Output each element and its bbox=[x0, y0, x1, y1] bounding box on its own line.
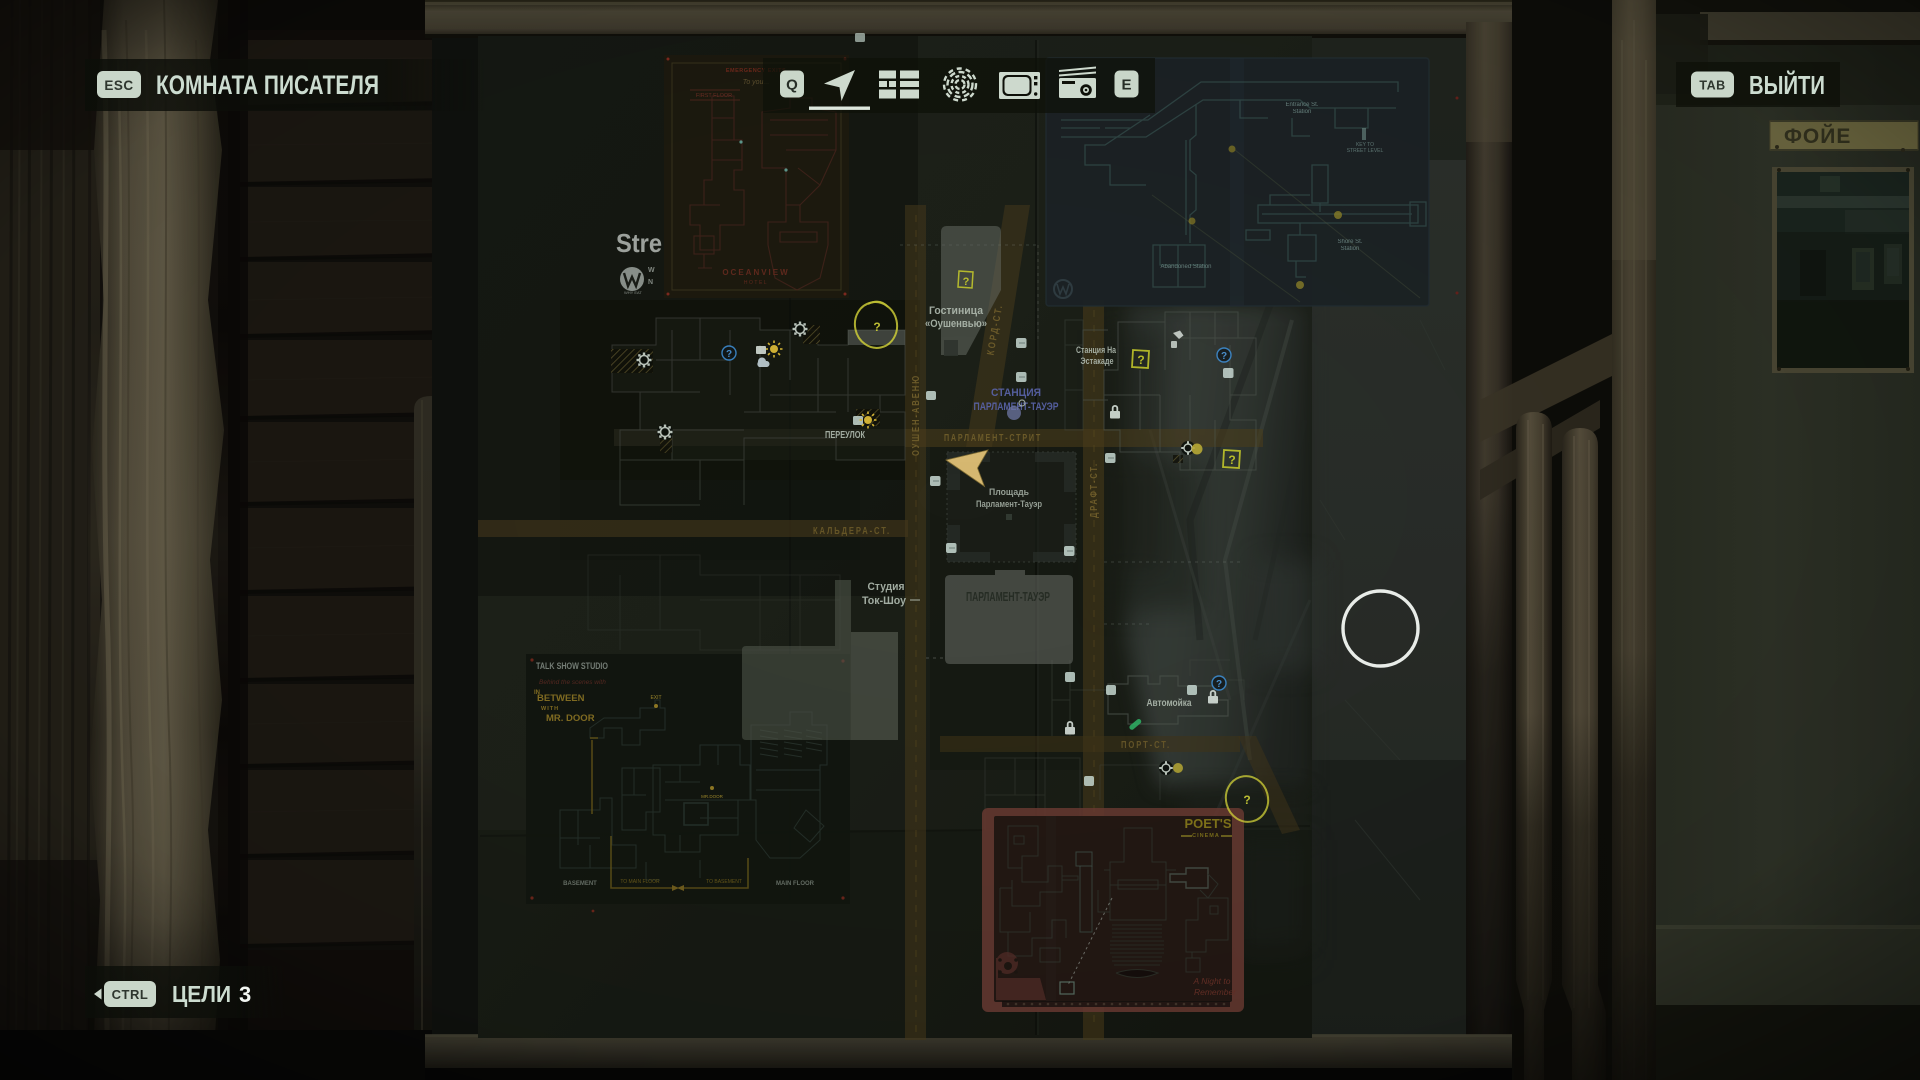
svg-text:TAB: TAB bbox=[1699, 79, 1725, 93]
svg-text:3: 3 bbox=[239, 982, 251, 1007]
svg-text:ВЫЙТИ: ВЫЙТИ bbox=[1749, 70, 1825, 100]
svg-text:Q: Q bbox=[786, 77, 798, 94]
svg-text:ESC: ESC bbox=[104, 78, 133, 93]
svg-text:ЦЕЛИ: ЦЕЛИ bbox=[172, 981, 231, 1007]
svg-text:КОМНАТА ПИСАТЕЛЯ: КОМНАТА ПИСАТЕЛЯ bbox=[156, 70, 379, 100]
svg-text:CTRL: CTRL bbox=[112, 987, 149, 1002]
svg-text:E: E bbox=[1121, 77, 1131, 94]
